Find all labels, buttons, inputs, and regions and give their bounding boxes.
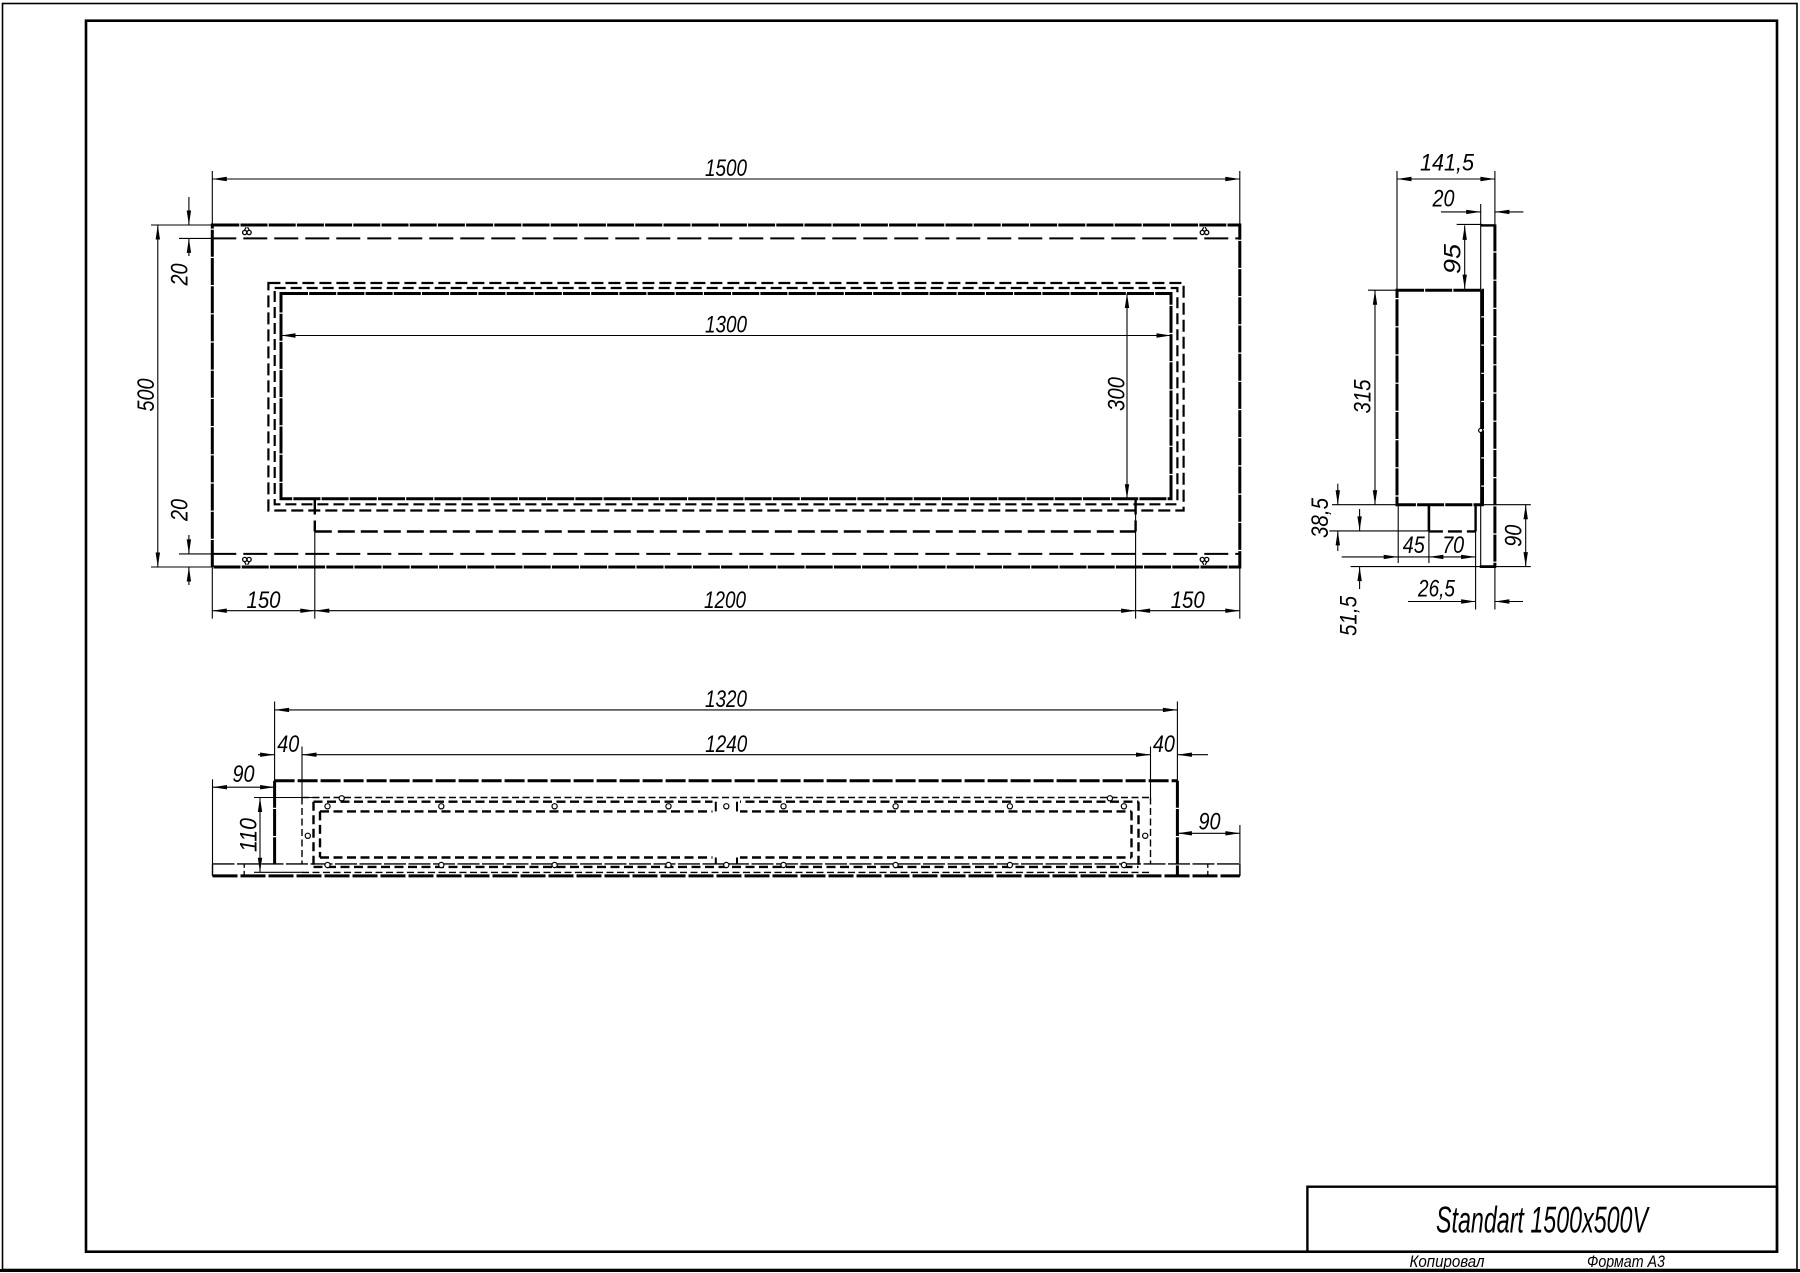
svg-text:90: 90 [1501, 524, 1528, 547]
svg-text:40: 40 [277, 731, 300, 758]
svg-text:1200: 1200 [704, 587, 747, 614]
svg-text:300: 300 [1104, 376, 1131, 411]
svg-text:Формат А3: Формат А3 [1587, 1252, 1665, 1271]
svg-text:20: 20 [1432, 186, 1455, 213]
svg-text:70: 70 [1442, 532, 1465, 559]
svg-text:150: 150 [247, 587, 282, 614]
svg-text:315: 315 [1350, 379, 1377, 414]
svg-text:Копировал: Копировал [1410, 1252, 1485, 1271]
svg-text:38,5: 38,5 [1307, 497, 1334, 538]
svg-text:90: 90 [233, 761, 256, 788]
svg-text:1300: 1300 [705, 312, 748, 339]
svg-text:26,5: 26,5 [1417, 576, 1455, 603]
svg-text:1240: 1240 [705, 731, 748, 758]
svg-text:110: 110 [235, 817, 262, 852]
svg-text:45: 45 [1403, 532, 1426, 559]
svg-text:1320: 1320 [705, 686, 748, 713]
svg-text:Standart 1500x500V: Standart 1500x500V [1436, 1200, 1650, 1241]
svg-text:500: 500 [133, 378, 160, 412]
svg-text:20: 20 [167, 263, 194, 286]
svg-text:141,5: 141,5 [1420, 150, 1475, 177]
svg-text:51,5: 51,5 [1336, 595, 1363, 636]
svg-text:1500: 1500 [705, 155, 748, 182]
svg-text:90: 90 [1199, 808, 1222, 835]
svg-text:40: 40 [1153, 731, 1176, 758]
svg-text:95: 95 [1440, 243, 1467, 274]
svg-text:150: 150 [1171, 587, 1206, 614]
svg-text:20: 20 [167, 498, 194, 521]
